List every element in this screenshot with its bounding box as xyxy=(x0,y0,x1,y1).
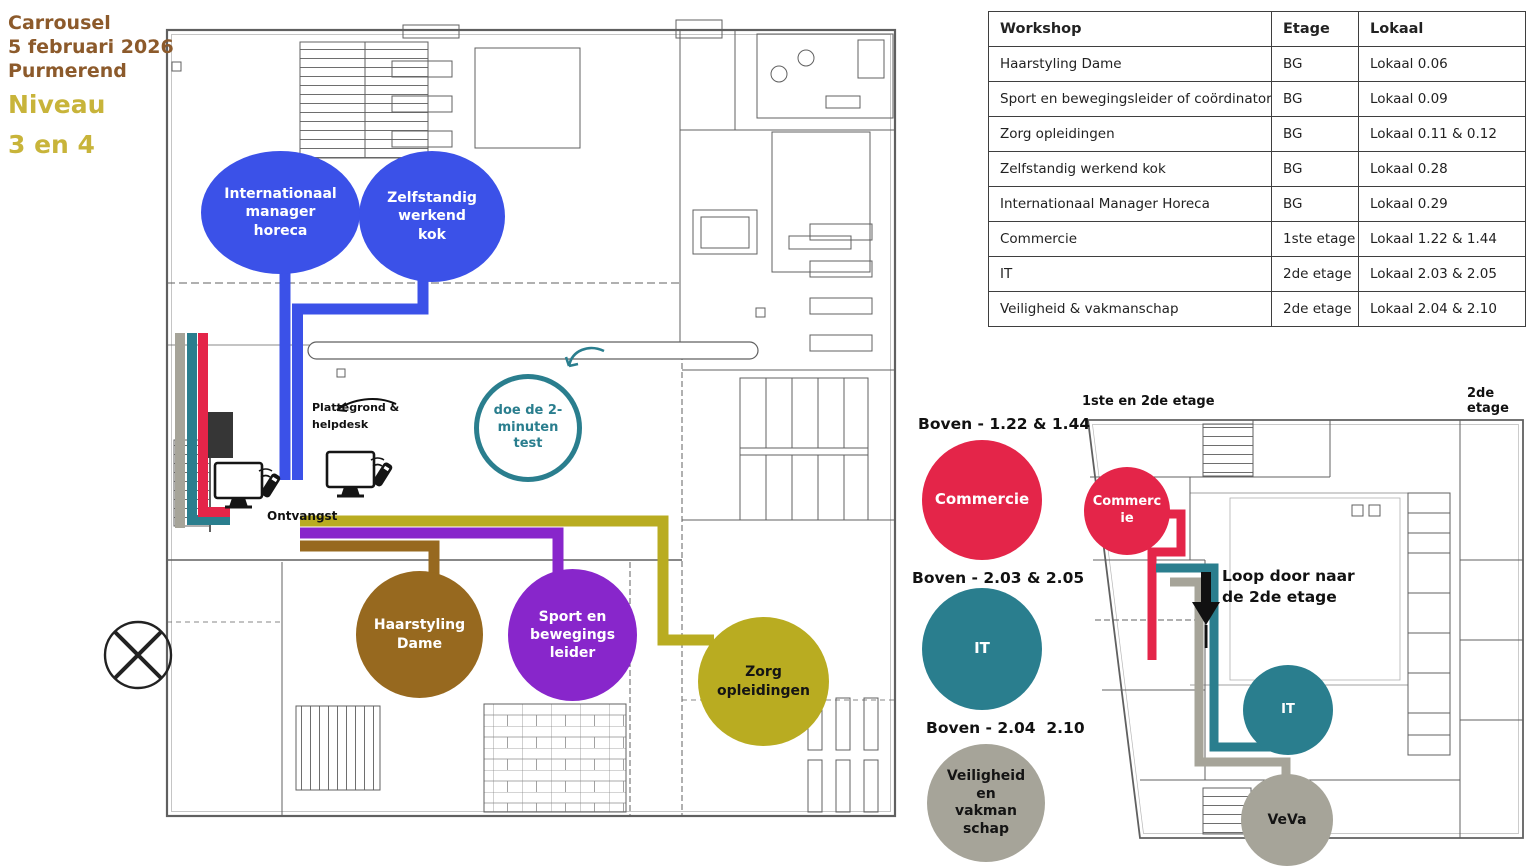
event-level-numbers: 3 en 4 xyxy=(8,129,174,161)
table-row: Sport en bewegingsleider of coördinatorB… xyxy=(989,82,1526,117)
legend-bubble-veiligheid-vakmanschap: Veiligheid en vakman schap xyxy=(927,744,1045,862)
cell-workshop: Zelfstandig werkend kok xyxy=(989,152,1272,187)
upper-bubble-veva: VeVa xyxy=(1241,774,1333,866)
title-block: Carrousel 5 februari 2026 Purmerend Nive… xyxy=(8,12,174,161)
event-city: Purmerend xyxy=(8,60,174,84)
monitor-icon xyxy=(215,463,282,507)
cell-lokaal: Lokaal 0.09 xyxy=(1359,82,1526,117)
bubble-internationaal-manager-horeca: Internationaal manager horeca xyxy=(201,151,360,274)
table-row: Internationaal Manager HorecaBGLokaal 0.… xyxy=(989,187,1526,222)
upper-bubble-commercie: Commerc ie xyxy=(1084,467,1170,555)
monitor-icon xyxy=(327,452,394,496)
cell-etage: 2de etage xyxy=(1272,257,1359,292)
table-header-row: Workshop Etage Lokaal xyxy=(989,12,1526,47)
ontvangst-label: Ontvangst xyxy=(267,509,337,523)
bubble-zelfstandig-werkend-kok: Zelfstandig werkend kok xyxy=(359,151,505,282)
cell-etage: 1ste etage xyxy=(1272,222,1359,257)
cell-lokaal: Lokaal 0.06 xyxy=(1359,47,1526,82)
legend-bubble-commercie: Commercie xyxy=(922,440,1042,560)
cell-etage: BG xyxy=(1272,117,1359,152)
upper-bubble-it: IT xyxy=(1243,665,1333,755)
cell-etage: 2de etage xyxy=(1272,292,1359,327)
bubble-zorg-opleidingen: Zorg opleidingen xyxy=(698,617,829,746)
cell-workshop: Veiligheid & vakmanschap xyxy=(989,292,1272,327)
bubble-twee-minuten-test: doe de 2- minuten test xyxy=(474,374,582,482)
legend-title-veva: Boven - 2.04 2.10 xyxy=(926,719,1085,737)
cell-etage: BG xyxy=(1272,187,1359,222)
route-blue-kok xyxy=(298,262,424,480)
event-date: 5 februari 2026 xyxy=(8,36,174,60)
table-row: Haarstyling DameBGLokaal 0.06 xyxy=(989,47,1526,82)
bubble-haarstyling-dame: Haarstyling Dame xyxy=(356,571,483,698)
legend-title-it: Boven - 2.03 & 2.05 xyxy=(912,569,1084,587)
event-level-word: Niveau xyxy=(8,89,174,121)
cell-workshop: Haarstyling Dame xyxy=(989,47,1272,82)
page: { "title": { "line1": "Carrousel", "line… xyxy=(0,0,1536,864)
cell-workshop: Sport en bewegingsleider of coördinator xyxy=(989,82,1272,117)
cell-workshop: Commercie xyxy=(989,222,1272,257)
cell-workshop: Zorg opleidingen xyxy=(989,117,1272,152)
event-name: Carrousel xyxy=(8,12,174,36)
loop-door-note: Loop door naar de 2de etage xyxy=(1222,566,1355,608)
workshop-table: Workshop Etage Lokaal Haarstyling DameBG… xyxy=(988,11,1526,327)
cell-etage: BG xyxy=(1272,82,1359,117)
legend-bubble-it: IT xyxy=(922,588,1042,710)
cell-etage: BG xyxy=(1272,152,1359,187)
plattegrond-helpdesk-label: Plattegrond & helpdesk xyxy=(312,400,399,433)
upper-floor-routes xyxy=(1152,514,1286,794)
cell-lokaal: Lokaal 0.28 xyxy=(1359,152,1526,187)
cell-lokaal: Lokaal 0.29 xyxy=(1359,187,1526,222)
cell-workshop: Internationaal Manager Horeca xyxy=(989,187,1272,222)
cell-lokaal: Lokaal 0.11 & 0.12 xyxy=(1359,117,1526,152)
table-row: Veiligheid & vakmanschap2de etageLokaal … xyxy=(989,292,1526,327)
compass-icon xyxy=(105,622,171,688)
legend-title-commercie: Boven - 1.22 & 1.44 xyxy=(918,415,1090,433)
cell-lokaal: Lokaal 1.22 & 1.44 xyxy=(1359,222,1526,257)
upper-plan-label-right: 2de etage xyxy=(1467,386,1536,416)
col-header-workshop: Workshop xyxy=(989,12,1272,47)
cell-lokaal: Lokaal 2.03 & 2.05 xyxy=(1359,257,1526,292)
table-row: IT2de etageLokaal 2.03 & 2.05 xyxy=(989,257,1526,292)
col-header-etage: Etage xyxy=(1272,12,1359,47)
cell-workshop: IT xyxy=(989,257,1272,292)
upper-plan-label-left: 1ste en 2de etage xyxy=(1082,394,1215,409)
table-row: Commercie1ste etageLokaal 1.22 & 1.44 xyxy=(989,222,1526,257)
table-row: Zorg opleidingenBGLokaal 0.11 & 0.12 xyxy=(989,117,1526,152)
cell-etage: BG xyxy=(1272,47,1359,82)
cell-lokaal: Lokaal 2.04 & 2.10 xyxy=(1359,292,1526,327)
table-row: Zelfstandig werkend kokBGLokaal 0.28 xyxy=(989,152,1526,187)
col-header-lokaal: Lokaal xyxy=(1359,12,1526,47)
bubble-sport-en-bewegingsleider: Sport en bewegings leider xyxy=(508,569,637,701)
